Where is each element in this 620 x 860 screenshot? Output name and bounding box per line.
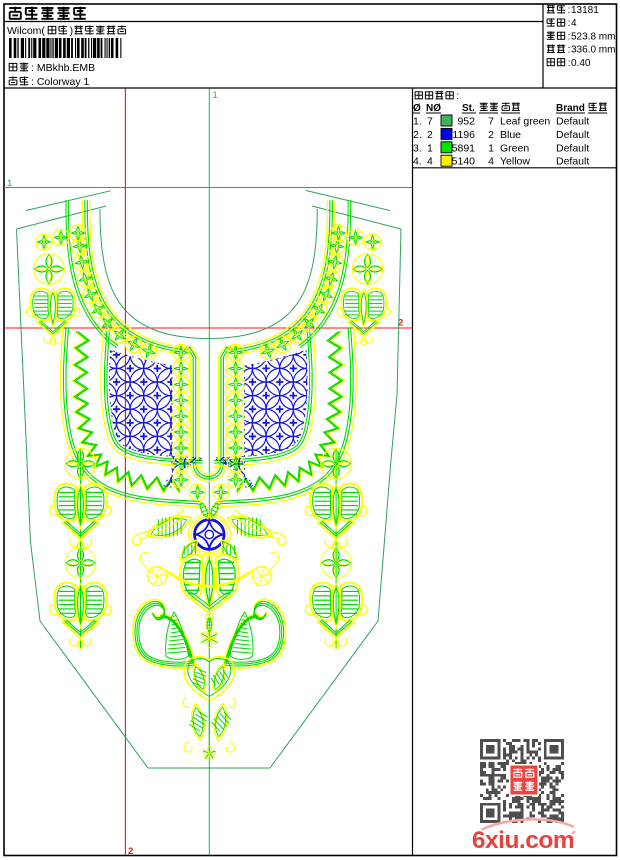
svg-text:NØ: NØ bbox=[426, 103, 441, 114]
svg-text:952: 952 bbox=[457, 116, 475, 128]
svg-text:Brand: Brand bbox=[556, 103, 585, 114]
svg-text:7: 7 bbox=[488, 116, 494, 128]
svg-text:1.: 1. bbox=[413, 116, 422, 128]
svg-text:Default: Default bbox=[556, 142, 589, 154]
svg-text:5891: 5891 bbox=[452, 142, 476, 154]
svg-text::: : bbox=[568, 31, 571, 42]
svg-text:Wilcom(: Wilcom( bbox=[7, 25, 45, 37]
svg-text:2.: 2. bbox=[413, 129, 422, 141]
svg-text:2: 2 bbox=[488, 129, 494, 141]
svg-text:): ) bbox=[70, 25, 74, 37]
svg-text:: MBkhb.EMB: : MBkhb.EMB bbox=[31, 62, 95, 74]
svg-text:Green: Green bbox=[500, 142, 529, 154]
svg-text:4: 4 bbox=[571, 18, 577, 29]
svg-text:1: 1 bbox=[488, 142, 494, 154]
svg-text:6xiu.com: 6xiu.com bbox=[472, 827, 574, 854]
svg-text:0.40: 0.40 bbox=[571, 58, 591, 69]
svg-text:1: 1 bbox=[427, 142, 433, 154]
svg-text:3.: 3. bbox=[413, 142, 422, 154]
svg-text:Ø: Ø bbox=[413, 103, 421, 114]
svg-text:523.8 mm: 523.8 mm bbox=[571, 31, 615, 42]
svg-text:4: 4 bbox=[427, 156, 433, 168]
svg-text:4.: 4. bbox=[413, 156, 422, 168]
svg-text:Default: Default bbox=[556, 156, 589, 168]
svg-text:1: 1 bbox=[7, 178, 12, 189]
svg-text::: : bbox=[568, 58, 571, 69]
svg-text:2: 2 bbox=[427, 129, 433, 141]
svg-text:Default: Default bbox=[556, 129, 589, 141]
svg-text:13181: 13181 bbox=[571, 5, 599, 16]
svg-text::: : bbox=[568, 5, 571, 16]
svg-text:2: 2 bbox=[128, 846, 133, 857]
svg-text:Blue: Blue bbox=[500, 129, 521, 141]
svg-text:4: 4 bbox=[488, 156, 494, 168]
svg-text:1: 1 bbox=[213, 90, 218, 101]
svg-text:1196: 1196 bbox=[452, 129, 475, 141]
svg-text:336.0 mm: 336.0 mm bbox=[571, 45, 615, 56]
svg-text:: Colorway 1: : Colorway 1 bbox=[31, 76, 90, 88]
svg-text:7: 7 bbox=[427, 116, 433, 128]
svg-text::: : bbox=[456, 91, 459, 102]
svg-text::: : bbox=[568, 45, 571, 56]
svg-text:St.: St. bbox=[462, 103, 475, 114]
svg-text::: : bbox=[568, 18, 571, 29]
svg-text:5140: 5140 bbox=[452, 156, 476, 168]
svg-text:Default: Default bbox=[556, 116, 589, 128]
svg-text:Leaf green: Leaf green bbox=[500, 116, 550, 128]
svg-text:Yellow: Yellow bbox=[500, 156, 530, 168]
